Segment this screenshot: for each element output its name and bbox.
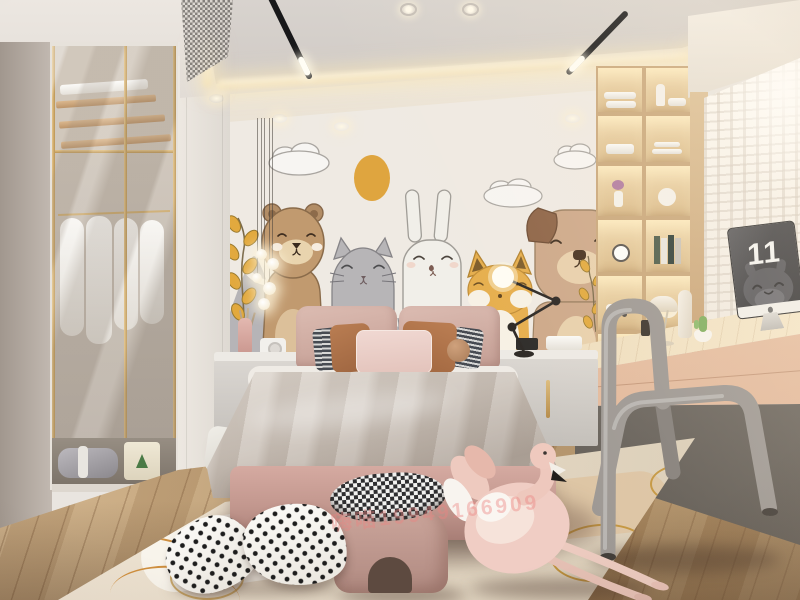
folded-linen xyxy=(60,79,148,95)
hanging-rod xyxy=(58,210,170,216)
hanging-clothes xyxy=(140,220,164,324)
duffel-strap xyxy=(78,446,88,478)
shelf-item-flower xyxy=(612,180,624,190)
downlight xyxy=(272,114,287,123)
shelf-cell xyxy=(646,68,690,112)
wood-shelf xyxy=(56,95,156,109)
shelf-item-clock xyxy=(612,244,630,262)
downlight xyxy=(565,114,580,123)
shelf-cell xyxy=(598,68,642,112)
wardrobe-glass-doors xyxy=(52,46,176,438)
brass-frame-middle xyxy=(124,46,127,438)
pendant-cord xyxy=(264,118,265,300)
shelf-item-linens xyxy=(606,101,636,108)
duffel-bag xyxy=(58,448,118,478)
pendant-globe xyxy=(258,298,270,310)
wardrobe-top-shelves xyxy=(52,46,176,150)
downlight xyxy=(462,3,479,16)
hanging-clothes xyxy=(86,216,112,344)
shelf-item-book xyxy=(668,235,674,264)
downlight xyxy=(209,94,224,103)
shelf-item-books xyxy=(654,142,680,147)
wood-shelf xyxy=(61,134,171,149)
hanging-clothes xyxy=(114,218,138,330)
shelf-item-books xyxy=(652,149,682,154)
shelf-item-cloth xyxy=(606,144,634,154)
bolster-ball xyxy=(447,339,470,362)
shelf-cell xyxy=(646,220,690,272)
pendant-cord xyxy=(261,118,262,250)
shelf-item-book xyxy=(675,238,681,264)
shelf-item-book xyxy=(661,238,667,264)
hanging-clothes xyxy=(60,218,84,336)
shelf-item-round-vase xyxy=(658,188,676,206)
shelf-cell xyxy=(598,166,642,216)
bedroom-scene: 11 xyxy=(0,0,800,600)
table-lamp-black xyxy=(470,248,580,366)
tote-tree-print xyxy=(136,454,148,468)
downlight xyxy=(400,3,417,16)
pendant-globe xyxy=(252,273,262,283)
shelf-item-linens xyxy=(604,92,636,99)
pendant-globe xyxy=(267,258,279,270)
brass-frame-right xyxy=(173,46,176,438)
stool-arch xyxy=(368,557,412,593)
shelf-item-vase xyxy=(656,84,665,106)
downlight xyxy=(334,122,349,131)
wood-shelf xyxy=(59,114,165,128)
wardrobe xyxy=(50,40,178,490)
shelf-item-book xyxy=(654,236,660,264)
brass-divider-horizontal xyxy=(52,150,176,153)
panel-seam xyxy=(186,56,187,486)
shelf-item-books xyxy=(668,98,686,106)
shelf-cell xyxy=(598,116,642,162)
pink-vase xyxy=(238,318,252,356)
shelf-item-vase xyxy=(614,191,623,207)
shelf-cell xyxy=(646,166,690,216)
pendant-globe xyxy=(256,249,267,260)
shelf-cell xyxy=(598,220,642,272)
pendant-globe xyxy=(263,282,276,295)
brass-frame-left xyxy=(52,46,55,438)
shelf-cell xyxy=(646,116,690,162)
mural-sun xyxy=(354,155,390,201)
pillow-blush-front xyxy=(356,330,432,374)
pendant-cord xyxy=(272,118,273,259)
left-wall xyxy=(0,36,52,536)
